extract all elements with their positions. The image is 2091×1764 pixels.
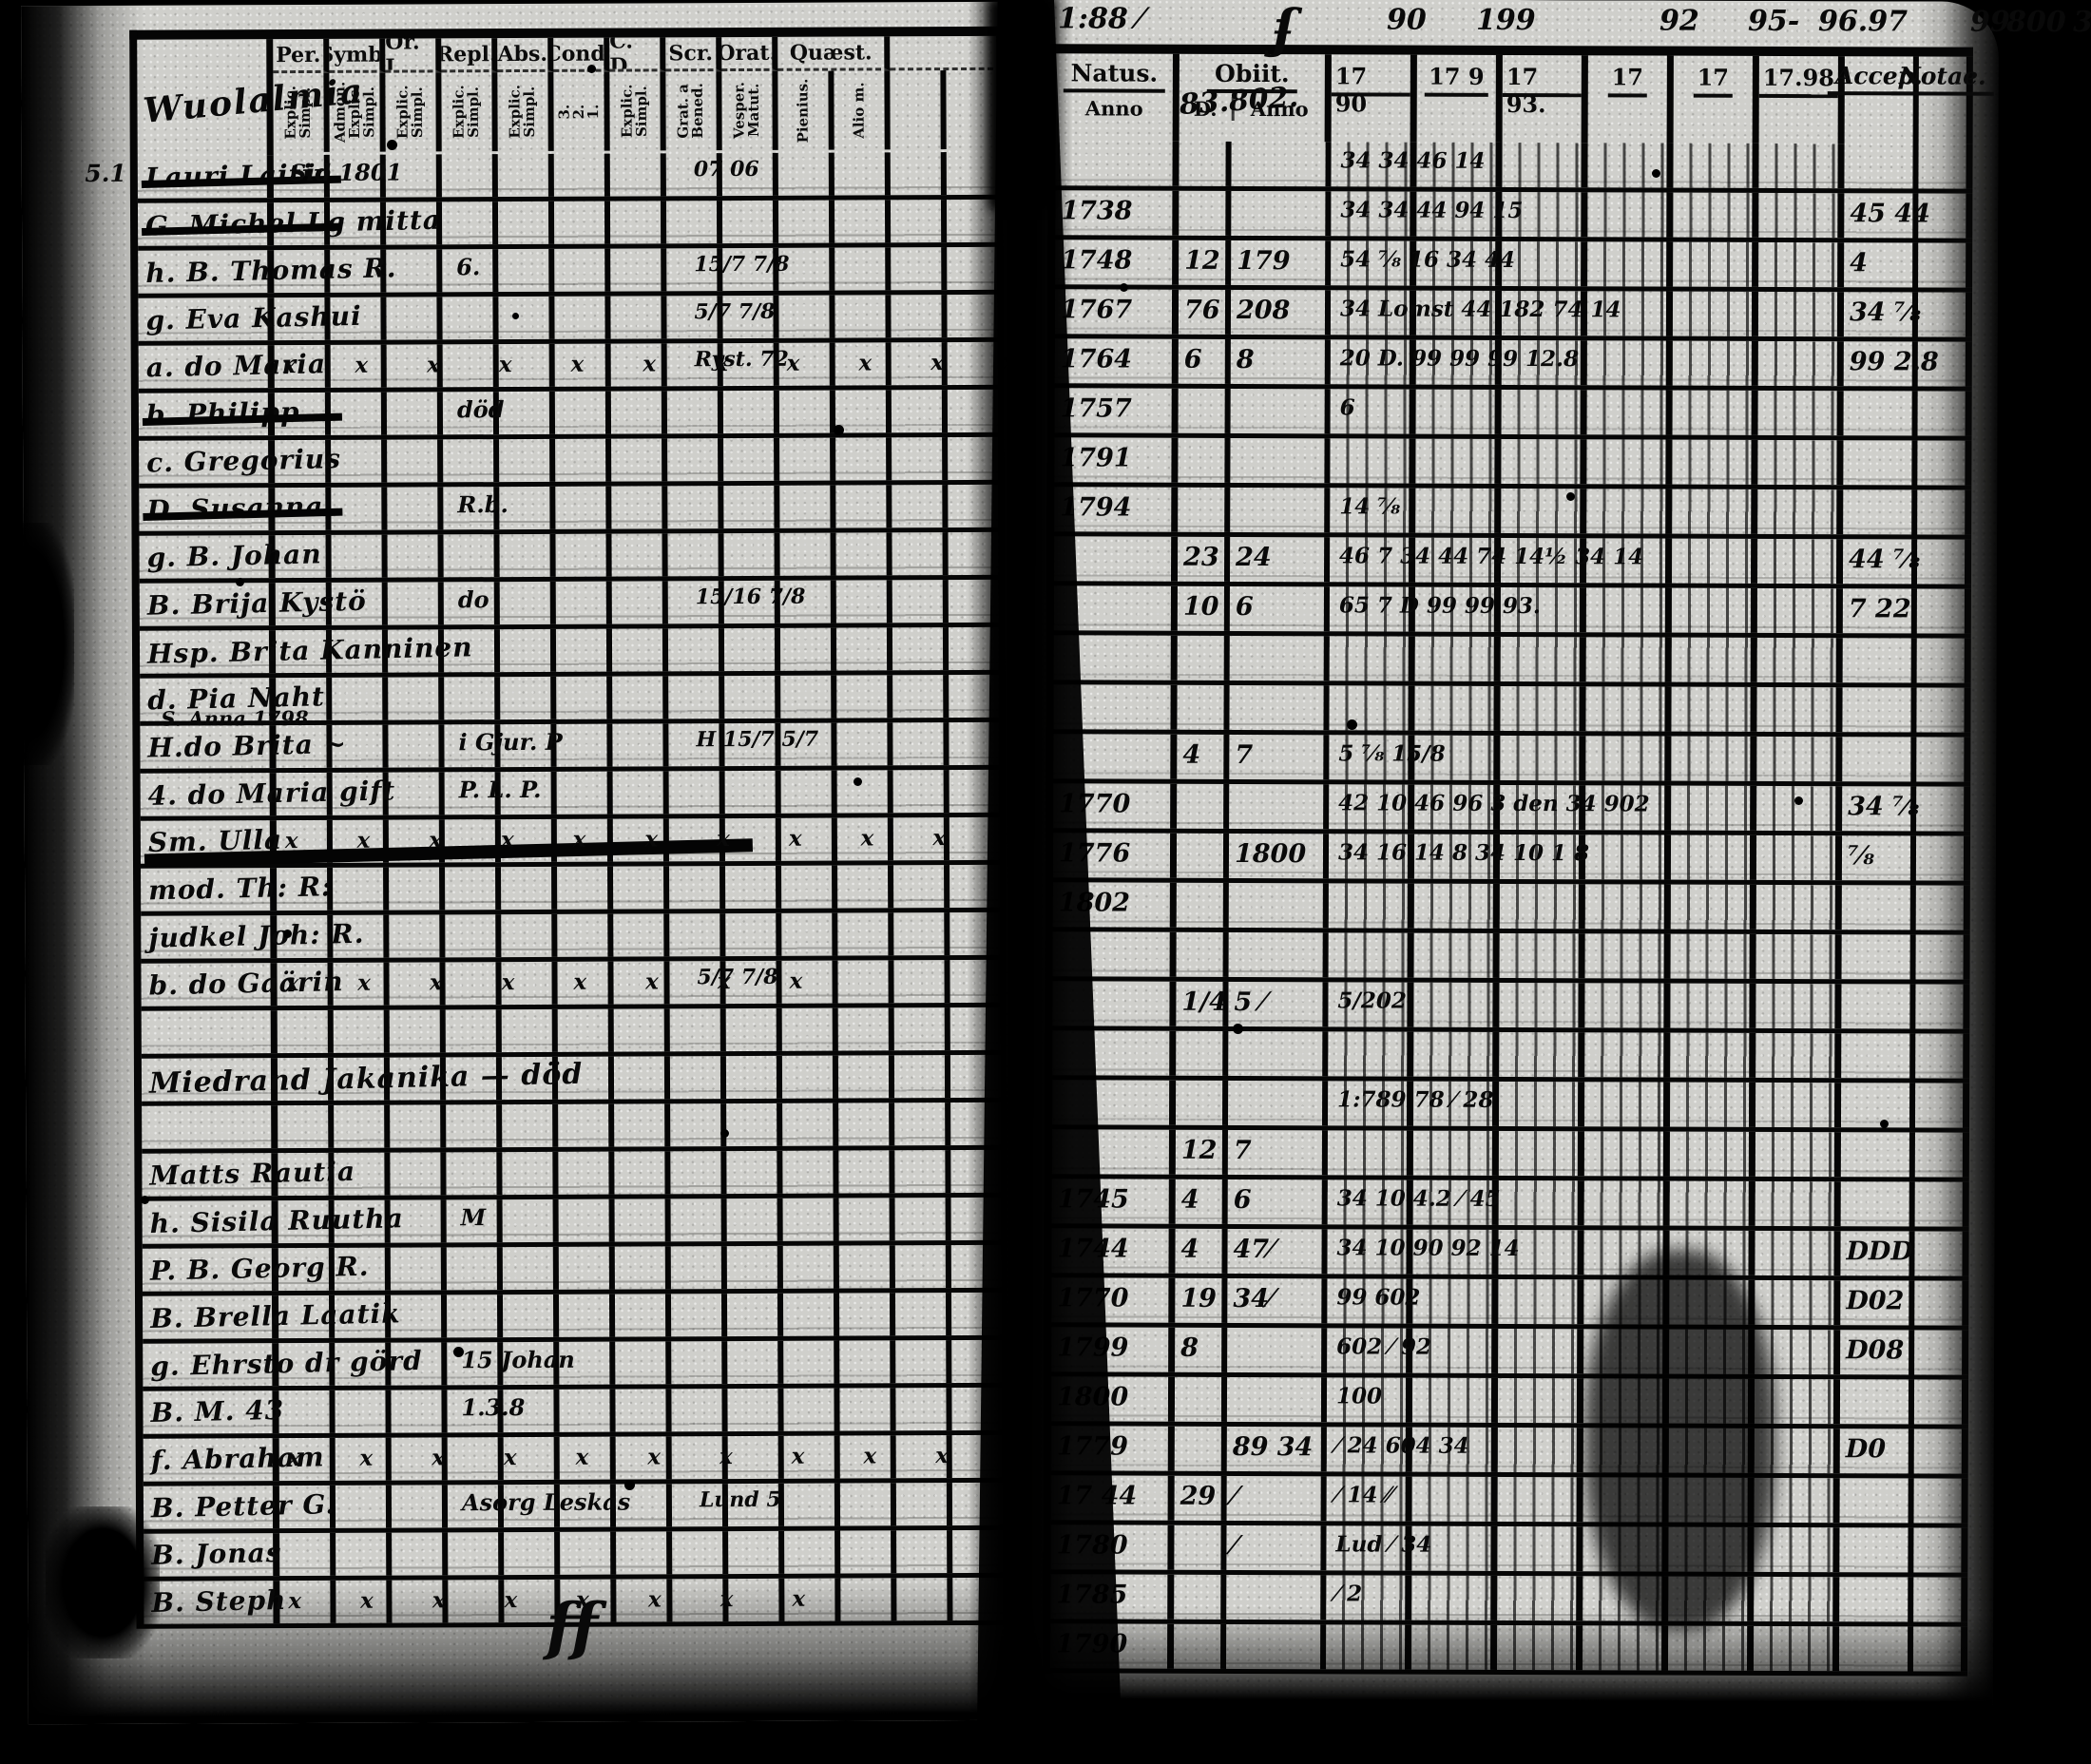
mark-cells [279, 1530, 1008, 1576]
ledger-row: 34 34 46 14 [1055, 141, 1972, 193]
column-group-label: Repl. [441, 38, 497, 72]
attendance-x-marks: x x x x x x x x [285, 968, 1026, 996]
ledger-row: f. Abraham x x x x x x x x x x x x [144, 1435, 1008, 1486]
column-group-label: Cond. [553, 38, 609, 72]
person-name: B. Steph [151, 1584, 287, 1619]
obiit-day-cell [1175, 1377, 1227, 1422]
notae-cell [1917, 440, 1971, 485]
mark-cells [276, 722, 1005, 768]
ledger-row: 1770 34 ⅞ 42 10 46 96 3 den 34 902 [1053, 783, 1970, 835]
year-cell [1671, 687, 1756, 732]
name-cell: Sm. Ulla [141, 820, 277, 864]
year-cell [1329, 883, 1414, 928]
name-cell: B. Petter G. [144, 1486, 279, 1529]
ledger-row: 1:789 78 ⁄ 28 [1052, 1080, 1969, 1132]
year-column-header: 17 90 [1332, 54, 1417, 142]
notae-cell [1913, 1626, 1967, 1671]
obiit-day-cell [1177, 883, 1229, 928]
obiit-day-cell [1179, 142, 1231, 186]
ledger-row: D. Susanna R.b. [139, 485, 1004, 536]
year-cell [1668, 1626, 1754, 1671]
obiit-anno-cell [1230, 636, 1330, 681]
name-cell: Hsp. Brita Kanninen [140, 630, 276, 674]
year-cell [1585, 884, 1671, 929]
year-cell [1585, 686, 1671, 731]
name-cell: g. Ehrsto dr görd [143, 1343, 278, 1387]
year-cell [1501, 439, 1586, 484]
person-name: P. B. Georg R. [150, 1251, 370, 1287]
ledger-row: G. Michel Lg mitta [138, 200, 1003, 251]
right-ledger-table: Natus. Anno Obiit. D. Anno 17 9017 917 9… [1043, 44, 1973, 1676]
ledger-row [1054, 635, 1971, 687]
obiit-anno-cell: 24 [1230, 537, 1330, 582]
year-cell [1326, 1624, 1411, 1669]
name-cell: 4. do Maria gift [141, 773, 277, 816]
column-subheader: Alio m. [834, 70, 890, 149]
mark-cells [276, 580, 1005, 625]
ledger-row [1053, 931, 1970, 984]
column-group-label: Scr. [665, 37, 721, 71]
column-group-labels: Per.Symb.Or. L.Repl.Abs.Cond.C. D.Scr.Or… [273, 36, 1002, 73]
year-cell [1586, 439, 1672, 484]
person-name: h. Sisila Ruutha [149, 1202, 404, 1239]
row-scrawl: 54 ⅞ 16 34 44 [1340, 246, 1948, 274]
year-column-header: 17 9 [1417, 55, 1503, 143]
row-scrawl: 1:789 78 ⁄ 28 [1337, 1086, 1946, 1114]
row-scrawl: 34 34 46 14 [1340, 147, 1948, 175]
natus-cell: 1767 [1055, 289, 1179, 334]
ledger-row: b. Philipp död [139, 390, 1004, 441]
obiit-day-cell: 6 [1179, 339, 1231, 384]
column-subheader: Explic. Simpl. [609, 71, 665, 150]
year-cell [1754, 1626, 1839, 1671]
obiit-day-cell [1174, 1575, 1226, 1620]
obiit-anno-cell: 89 34 [1227, 1427, 1327, 1471]
ledger-row: B. M. 43 1.3.8 [143, 1388, 1007, 1439]
accep-cell [1842, 934, 1916, 979]
name-cell: d. Pia Naht S. Anna 1798 [140, 678, 276, 721]
obiit-anno-cell: ⁄ [1227, 1476, 1327, 1521]
natus-cell [1055, 141, 1179, 185]
obiit-anno-cell [1228, 1031, 1328, 1076]
ledger-row: 1799 8 D08 602 ⁄ 92 [1051, 1327, 1968, 1379]
ledger-row: 1780 ⁄ Lud ⁄ 34 [1050, 1524, 1967, 1577]
ledger-row: 1770 19 34⁄ D02 99 602 [1051, 1277, 1968, 1330]
left-table-header: Wuolalmia Per.Symb.Or. L.Repl.Abs.Cond.C… [137, 36, 1003, 156]
entry-note: Sid 1801 [290, 159, 403, 187]
name-cell: D. Susanna [139, 488, 275, 531]
accep-cell [1843, 440, 1917, 485]
ledger-row: 1764 6 8 99 2.8 20 D. 99 99 99 12.8 [1055, 338, 1972, 391]
ledger-row: 10 6 7 22 65 7 D 99 99 93. [1054, 585, 1971, 638]
entry-fractions: Lund 5 [700, 1487, 781, 1512]
year-cell [1500, 884, 1585, 929]
name-cell: H.do Brita ~ [140, 725, 276, 769]
obiit-anno-cell: 1800 [1229, 834, 1329, 878]
row-scrawl: 34 16 14 8 34 10 1 8 [1338, 839, 1947, 867]
ink-blot [46, 1506, 160, 1659]
obiit-anno-cell: 7 [1229, 735, 1329, 779]
ledger-row: 12 7 [1052, 1129, 1969, 1181]
row-scrawl: 6 [1340, 394, 1948, 422]
ledger-row: 17 44 29 ⁄ ⁄ 14 ⁄⁄ [1051, 1475, 1968, 1527]
obiit-day-cell: 8 [1175, 1328, 1227, 1372]
obiit-anno-cell [1231, 142, 1331, 186]
person-name: Matts Rautia [149, 1156, 355, 1192]
name-cell: Matts Rautia [142, 1153, 278, 1197]
column-subheader: Vesper. Matut. [721, 71, 777, 150]
ledger-row: 1767 76 208 34 ⅞ 34 Lomst 44 182 74 14 [1055, 289, 1972, 341]
ledger-row: g. B. Johan [139, 532, 1004, 584]
paper-speckles [0, 0, 5, 5]
person-name: g. Ehrsto dr görd [150, 1345, 423, 1382]
attendance-x-marks: x x x x x x x x x x x x x x x x x x [283, 350, 1025, 378]
obiit-anno-cell: 6 [1230, 586, 1330, 631]
obiit-day-cell: 12 [1176, 1130, 1228, 1175]
ledger-row [142, 1007, 1007, 1059]
column-subheader: Grat. a Bened. [665, 71, 721, 150]
row-scrawl: 65 7 D 99 99 93. [1339, 592, 1947, 620]
year-cell [1414, 884, 1500, 929]
obiit-day-cell [1175, 1427, 1227, 1471]
name-cell: b. Philipp [139, 393, 275, 436]
ledger-row: 1776 1800 ⅞ 34 16 14 8 34 10 1 8 [1053, 833, 1970, 885]
column-group-label: Per. [273, 39, 329, 73]
left-table-rows: 5.1 Lauri Laitin Sid 1801 07 06 [138, 152, 1009, 1629]
year-cell [1330, 636, 1415, 681]
ledger-row: judkel Joh: R. [141, 912, 1006, 964]
obiit-anno-cell [1227, 1328, 1327, 1372]
obiit-day-cell [1176, 1081, 1228, 1125]
year-cell [1414, 933, 1500, 978]
accep-cell [1841, 1132, 1915, 1177]
ledger-row: 1790 [1050, 1623, 1967, 1676]
ledger-row: a. do Maria Ryst. 72. x x x x x x x x x … [139, 342, 1004, 393]
year-cell [1586, 637, 1672, 681]
year-cell [1499, 1131, 1584, 1176]
year-cell [1670, 1132, 1755, 1177]
person-name: g. B. Johan [146, 538, 322, 573]
row-scrawl: 34 Lomst 44 182 74 14 [1340, 296, 1948, 323]
obiit-day-cell [1177, 834, 1229, 878]
entry-fractions: 07 06 [694, 157, 759, 182]
row-scrawl: 34 10 90 92 14 [1336, 1235, 1945, 1262]
person-name: H.do Brita ~ [147, 728, 347, 764]
attendance-x-marks: x x x x x x x x x x x x x x x x x x [285, 825, 1026, 853]
ledger-row: 1/4 5 ⁄ 5/202 [1052, 981, 1969, 1033]
year-cell [1328, 1031, 1413, 1076]
obiit-day-cell: 19 [1175, 1278, 1227, 1323]
mark-cells [278, 1150, 1007, 1196]
mark-cells [275, 532, 1004, 578]
ledger-row: 4 7 5 ⅞ 15/8 [1053, 734, 1970, 786]
mark-cells [279, 1483, 1008, 1528]
mark-cells [275, 390, 1004, 435]
notae-cell [1916, 687, 1970, 732]
name-cell: B. Brija Kystö [140, 583, 276, 626]
person-name: B. Petter G. [151, 1488, 336, 1524]
ledger-row: B. Brella Laatik [143, 1293, 1007, 1344]
column-group-label: Or. L. [385, 38, 441, 72]
mark-cells [278, 1388, 1007, 1433]
obiit-day-cell: 29 [1175, 1476, 1227, 1521]
mark-cells [277, 865, 1006, 911]
year-cell [1411, 1625, 1497, 1670]
obiit-day-cell [1177, 932, 1229, 977]
name-cell: a. do Maria [139, 345, 275, 389]
ledger-row: h. B. Thomas R. 6. 15/7 7/8 [138, 247, 1003, 298]
name-cell: Miedrand Jakanika — död [142, 1058, 278, 1102]
ledger-row: Miedrand Jakanika — död [142, 1055, 1007, 1106]
ledger-row: 1779 89 34 D0 ⁄ 24 604 34 [1051, 1426, 1968, 1478]
ledger-row: Matts Rautia [142, 1150, 1007, 1201]
year-cell [1329, 685, 1414, 730]
mark-cells [277, 912, 1006, 958]
person-name: c. Gregorius [146, 443, 341, 478]
obiit-day-cell [1174, 1525, 1226, 1570]
year-cell [1583, 1625, 1668, 1670]
name-cell: P. B. Georg R. [143, 1248, 278, 1292]
ledger-row: Sm. Ulla x x x x x x x x x x x x x x x x… [141, 817, 1006, 869]
entry-fractions: 15/7 7/8 [694, 252, 789, 277]
left-page: Wuolalmia Per.Symb.Or. L.Repl.Abs.Cond.C… [21, 2, 1028, 1725]
right-page: 1:88 ⁄ʄ901999295-96.979980034 83.802. Na… [1031, 0, 1999, 1705]
year-cell [1413, 1131, 1499, 1176]
column-group-label: Quæst. [777, 36, 890, 71]
row-scrawl: 34 10 4.2 ⁄ 45 [1337, 1185, 1946, 1213]
year-column-header: 17 [1674, 56, 1759, 144]
ledger-row: B. Brija Kystö do 15/16 7/8 [140, 580, 1005, 631]
natus-cell: 1764 [1055, 338, 1179, 383]
entry-note: 6. [456, 253, 480, 280]
year-cell [1499, 1032, 1584, 1077]
accep-cell [1842, 687, 1916, 732]
mark-cells [278, 1007, 1007, 1053]
mark-cells [276, 675, 1005, 720]
ledger-row: g. Ehrsto dr görd 15 Johan [143, 1340, 1007, 1391]
year-cell [1415, 637, 1501, 681]
obiit-day-cell: 10 [1178, 586, 1230, 631]
entry-note: 15 Johan [461, 1346, 575, 1374]
year-cell [1672, 638, 1757, 682]
entry-fractions: 15/16 7/8 [696, 585, 806, 610]
obiit-anno-cell [1231, 389, 1331, 433]
year-cell [1757, 638, 1843, 682]
year-cell [1756, 885, 1842, 930]
obiit-day-cell [1177, 784, 1229, 829]
obiit-anno-cell [1231, 191, 1331, 236]
entry-fractions: 5/7 7/8 [694, 299, 775, 324]
obiit-anno-cell [1230, 438, 1330, 483]
obiit-day-cell [1178, 636, 1230, 681]
entry-note: M [461, 1203, 487, 1231]
obiit-anno-cell [1229, 932, 1329, 977]
year-cell [1755, 1033, 1841, 1078]
column-subheaders: Explic. Simpl.Admon. Explic. Simpl.Expli… [273, 70, 1002, 152]
year-cell [1414, 686, 1500, 731]
ledger-row: mod. Th: R: [141, 865, 1006, 916]
obiit-day-cell: 4 [1175, 1229, 1227, 1274]
obiit-day-cell [1178, 488, 1230, 532]
year-cell [1757, 440, 1843, 485]
obiit-day-cell [1174, 1624, 1226, 1669]
year-cell [1413, 1032, 1499, 1077]
mark-cells [275, 485, 1004, 530]
year-cell [1584, 1032, 1670, 1077]
ledger-row: P. B. Georg R. [143, 1245, 1007, 1296]
ledger-row: 1744 4 47⁄ DDD 34 10 90 92 14 [1051, 1228, 1968, 1280]
obiit-anno-cell: ⁄ [1226, 1525, 1326, 1570]
person-name: D. Susanna [146, 490, 324, 526]
ledger-row: 1802 [1053, 882, 1970, 934]
obiit-day-cell: 4 [1177, 735, 1229, 779]
right-table-rows: 34 34 46 14 1738 45 44 34 34 44 94 15 [1050, 141, 1973, 1676]
year-cell [1755, 1132, 1841, 1177]
obiit-day-cell: 1/4 [1176, 982, 1228, 1026]
ledger-row: d. Pia Naht S. Anna 1798 [140, 675, 1005, 726]
attendance-x-marks: x x x x x x x x [288, 1585, 1029, 1614]
obiit-day-cell: 12 [1179, 240, 1231, 285]
row-scrawl: 20 D. 99 99 99 12.8 [1340, 345, 1948, 373]
ledger-row: 23 24 44 ⅞ 46 7 34 44 74 14½ 34 14 [1054, 536, 1971, 588]
person-name: B. Jonas [151, 1537, 282, 1571]
obiit-anno-cell: 7 [1228, 1130, 1328, 1175]
column-subheader: 3. 2. 1. [553, 72, 609, 151]
person-name: 4. do Maria gift [147, 775, 395, 812]
ledger-row: b. do Gaärin 5/7 7/8 x x x x x x x x [141, 960, 1006, 1011]
obiit-anno-cell: 179 [1231, 240, 1331, 285]
year-cell [1329, 932, 1414, 977]
year-annotation: 92 [1659, 5, 1699, 38]
obiit-anno-cell: 6 [1228, 1179, 1328, 1224]
accep-cell [1843, 638, 1917, 682]
column-group-label: Symb. [329, 39, 385, 73]
name-cell [142, 1105, 278, 1149]
year-column-header: 17 93. [1503, 55, 1588, 143]
name-cell: B. Steph [144, 1581, 279, 1624]
ledger-row: 5.1 Lauri Laitin Sid 1801 07 06 [138, 152, 1003, 203]
year-cell [1501, 637, 1586, 681]
mark-cells [278, 1102, 1007, 1148]
entry-note: do [458, 585, 489, 613]
row-scrawl: 5/202 [1337, 987, 1946, 1015]
ledger-row: H.do Brita ~ i Gjur. P H 15/7 5/7 [140, 722, 1005, 774]
obiit-anno-cell [1229, 883, 1329, 928]
year-cell [1670, 1033, 1755, 1078]
ledger-row: 1794 14 ⅞ [1054, 487, 1971, 539]
name-cell: mod. Th: R: [141, 868, 277, 911]
obiit-day-cell [1177, 685, 1229, 730]
notae-header: Notae. [1919, 56, 1973, 144]
ledger-row: 1745 4 6 34 10 4.2 ⁄ 45 [1052, 1179, 1969, 1231]
handwritten-year-annotations: 1:88 ⁄ʄ901999295-96.979980034 [1037, 2, 1999, 49]
year-cell [1497, 1625, 1583, 1670]
year-annotation: 95- [1748, 5, 1799, 38]
column-subheader: Admon. Explic. Simpl. [329, 73, 385, 152]
row-scrawl: 46 7 34 44 74 14½ 34 14 [1339, 543, 1947, 570]
ledger-row [1052, 1030, 1969, 1083]
ledger-row: Hsp. Brita Kanninen [140, 627, 1005, 679]
scanned-book-spread: Wuolalmia Per.Symb.Or. L.Repl.Abs.Cond.C… [0, 0, 2091, 1764]
year-cell [1584, 1131, 1670, 1176]
obiit-anno-cell: 5 ⁄ [1228, 982, 1328, 1026]
natus-cell: 1791 [1054, 437, 1178, 482]
column-group-label: C. D. [609, 37, 665, 71]
mark-cells [274, 295, 1003, 340]
ink-smudge [988, 0, 1055, 209]
entry-note: död [457, 395, 505, 423]
year-cell [1415, 439, 1501, 484]
obiit-day-cell [1176, 1031, 1228, 1076]
ink-blot [13, 523, 74, 765]
name-cell: Lauri Laitin [138, 155, 274, 199]
obiit-anno-cell [1226, 1575, 1326, 1620]
year-annotation: 34 [2073, 6, 2091, 39]
name-cell: h. Sisila Ruutha [143, 1200, 278, 1244]
left-ledger-table: Wuolalmia Per.Symb.Or. L.Repl.Abs.Cond.C… [129, 27, 1008, 1629]
year-annotation: 90 [1387, 4, 1427, 37]
year-cell [1671, 934, 1756, 979]
obiit-day-cell: 4 [1176, 1179, 1228, 1224]
accep-cell [1839, 1626, 1913, 1671]
notae-cell [1916, 934, 1970, 979]
person-name: B. Brija Kystö [146, 585, 367, 622]
obiit-day-cell [1178, 438, 1230, 483]
ledger-row: 1785 ⁄ 2 [1050, 1574, 1967, 1626]
obiit-day-cell: 76 [1179, 290, 1231, 335]
column-subheader: Explic. Simpl. [385, 72, 441, 151]
notae-cell [1915, 1132, 1969, 1177]
obiit-anno-cell [1229, 685, 1329, 730]
notae-cell [1916, 885, 1970, 930]
entry-fractions: H 15/7 5/7 [696, 727, 818, 753]
entry-note: P. L. P. [459, 776, 542, 803]
stray-flourish: ff [546, 1589, 598, 1663]
natus-cell: 1757 [1055, 388, 1179, 432]
entry-note: 1.3.8 [461, 1393, 525, 1421]
year-column-header: 17 [1588, 55, 1674, 143]
person-name: h. B. Thomas R. [145, 252, 397, 289]
obiit-anno-cell: 34⁄ [1227, 1278, 1327, 1323]
obiit-anno-cell: 8 [1231, 339, 1331, 384]
obiit-day-cell [1179, 191, 1231, 236]
ledger-row: c. Gregorius [139, 437, 1004, 489]
year-cell [1756, 934, 1842, 979]
ledger-row: B. Jonas [144, 1530, 1008, 1582]
natus-cell: 1738 [1055, 190, 1179, 235]
attendance-x-marks: x x x x x x x x x x x x [288, 1443, 1029, 1471]
row-scrawl [1335, 1630, 1944, 1632]
ledger-row: 1800 100 [1051, 1376, 1968, 1428]
name-cell: g. B. Johan [139, 535, 275, 579]
year-annotation: 99 [1970, 6, 2010, 39]
ledger-row [142, 1102, 1007, 1154]
year-annotation: 800 [2006, 6, 2066, 39]
year-cell [1671, 885, 1756, 930]
obiit-day-cell: 23 [1178, 537, 1230, 582]
year-cell [1500, 686, 1585, 731]
year-cell [1756, 687, 1842, 732]
person-name: B. Brella Laatik [150, 1297, 401, 1334]
column-subheader: Explic. Simpl. [441, 72, 497, 151]
ledger-row: 4. do Maria gift P. L. P. [141, 770, 1006, 821]
obiit-day-cell [1179, 389, 1231, 433]
notae-cell [1915, 1033, 1969, 1078]
year-cell [1328, 1130, 1413, 1175]
column-group-label: Orat. [721, 37, 777, 71]
column-subheader [890, 70, 946, 149]
obiit-anno-cell [1226, 1624, 1326, 1669]
